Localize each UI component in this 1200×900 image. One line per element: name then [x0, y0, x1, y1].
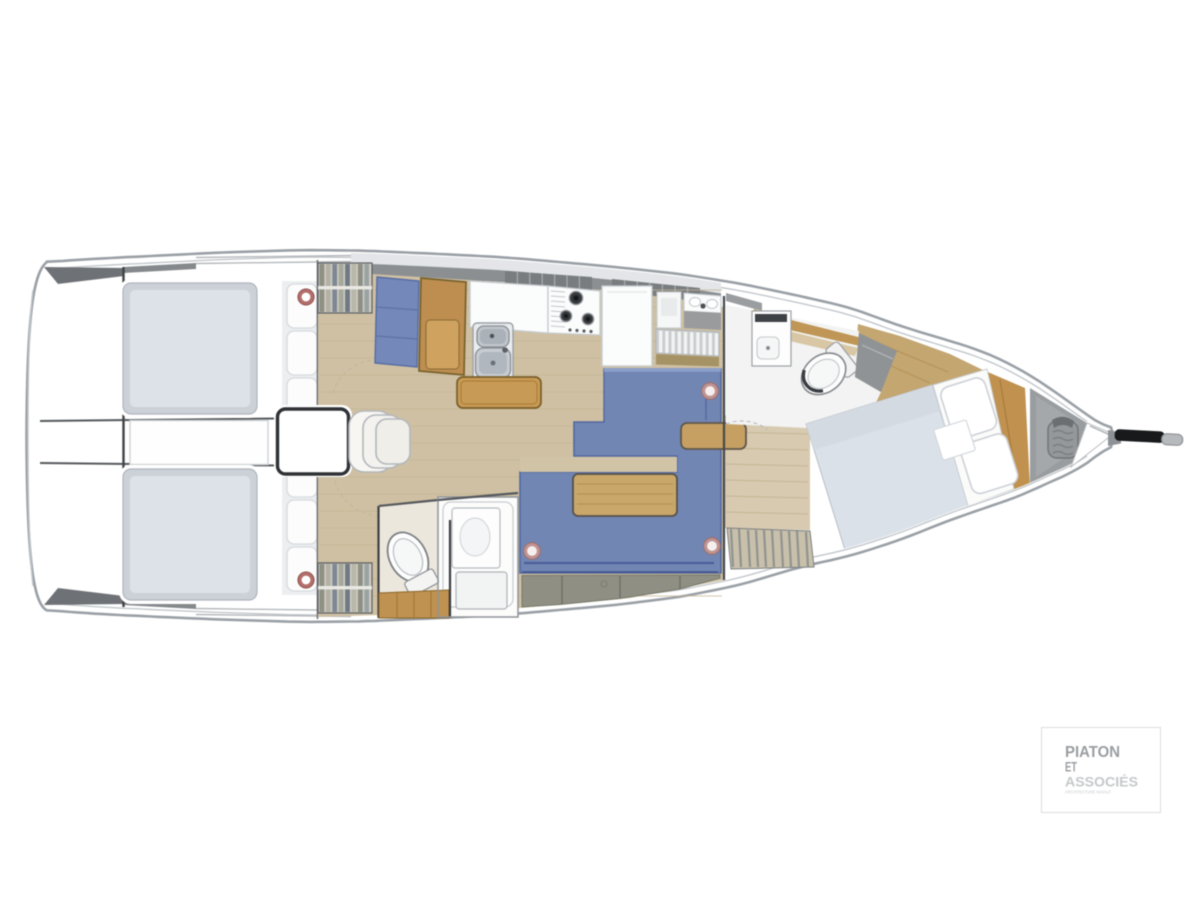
svg-text:ASSOCIÉS: ASSOCIÉS — [1065, 775, 1138, 790]
svg-text:ARCHITECTURE NAVALE: ARCHITECTURE NAVALE — [1065, 790, 1111, 795]
svg-text:ET: ET — [1065, 760, 1078, 775]
svg-text:PIATON: PIATON — [1065, 744, 1120, 761]
